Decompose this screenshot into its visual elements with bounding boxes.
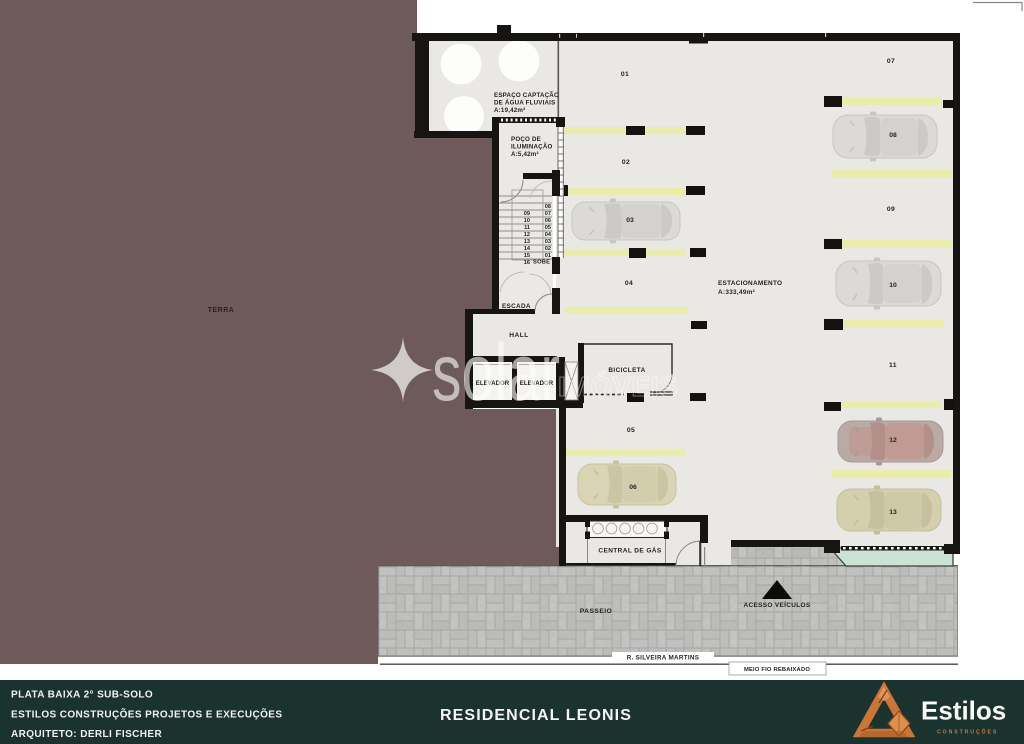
svg-text:solar: solar — [432, 328, 560, 418]
svg-text:14: 14 — [524, 246, 531, 252]
svg-text:TERRA: TERRA — [208, 307, 235, 314]
svg-text:ESTILOS CONSTRUÇÕES PROJETOS E: ESTILOS CONSTRUÇÕES PROJETOS E EXECUÇÕES — [11, 708, 282, 721]
svg-text:ESTACIONAMENTO: ESTACIONAMENTO — [718, 280, 782, 287]
svg-text:11: 11 — [524, 225, 530, 231]
svg-text:04: 04 — [625, 280, 633, 287]
svg-text:CONSTRUÇÕES: CONSTRUÇÕES — [937, 729, 998, 736]
svg-text:12: 12 — [889, 437, 897, 444]
svg-text:A:5,42m²: A:5,42m² — [511, 151, 539, 158]
svg-text:RESIDENCIAL LEONIS: RESIDENCIAL LEONIS — [440, 707, 632, 724]
svg-text:03: 03 — [545, 239, 551, 245]
svg-text:04: 04 — [545, 232, 552, 238]
svg-text:13: 13 — [524, 239, 530, 245]
svg-text:ESPAÇO CAPTAÇÃO: ESPAÇO CAPTAÇÃO — [494, 92, 559, 99]
svg-text:15: 15 — [524, 253, 530, 259]
svg-text:05: 05 — [545, 225, 551, 231]
svg-text:01: 01 — [545, 253, 551, 259]
svg-text:06: 06 — [629, 484, 637, 491]
svg-text:08: 08 — [889, 132, 897, 139]
svg-text:09: 09 — [524, 211, 530, 217]
svg-text:R. SILVEIRA MARTINS: R. SILVEIRA MARTINS — [627, 655, 700, 662]
svg-text:06: 06 — [545, 218, 551, 224]
svg-text:ESCADA: ESCADA — [502, 303, 531, 310]
svg-text:03: 03 — [626, 217, 634, 224]
svg-text:A:19,42m²: A:19,42m² — [494, 107, 525, 114]
svg-text:07: 07 — [545, 211, 551, 217]
svg-text:10: 10 — [889, 282, 897, 289]
svg-text:ARQUITETO: DERLI FISCHER: ARQUITETO: DERLI FISCHER — [11, 729, 162, 740]
svg-text:IMÓVEIS: IMÓVEIS — [558, 371, 678, 402]
svg-text:CENTRAL DE GÁS: CENTRAL DE GÁS — [598, 546, 662, 555]
svg-text:02: 02 — [622, 159, 630, 166]
svg-text:ILUMINAÇÃO: ILUMINAÇÃO — [511, 144, 553, 151]
svg-text:08: 08 — [545, 204, 551, 210]
svg-text:ACESSO VEÍCULOS: ACESSO VEÍCULOS — [744, 600, 811, 609]
svg-text:11: 11 — [889, 362, 897, 369]
svg-text:POÇO DE: POÇO DE — [511, 136, 541, 143]
svg-text:SOBE: SOBE — [533, 260, 550, 266]
svg-text:13: 13 — [889, 509, 897, 516]
svg-text:PASSEIO: PASSEIO — [580, 608, 613, 615]
svg-text:01: 01 — [621, 71, 629, 78]
svg-text:16: 16 — [524, 260, 530, 266]
svg-text:12: 12 — [524, 232, 530, 238]
svg-text:Estilos: Estilos — [921, 696, 1006, 726]
svg-text:MEIO FIO REBAIXADO: MEIO FIO REBAIXADO — [744, 667, 810, 673]
svg-text:07: 07 — [887, 58, 895, 65]
svg-text:PLATA BAIXA 2° SUB-SOLO: PLATA BAIXA 2° SUB-SOLO — [11, 690, 153, 701]
svg-text:10: 10 — [524, 218, 530, 224]
svg-text:02: 02 — [545, 246, 551, 252]
svg-text:DE ÁGUA FLUVIAIS: DE ÁGUA FLUVIAIS — [494, 100, 555, 107]
svg-text:09: 09 — [887, 206, 895, 213]
svg-text:A:333,49m²: A:333,49m² — [718, 289, 755, 296]
svg-text:05: 05 — [627, 427, 635, 434]
